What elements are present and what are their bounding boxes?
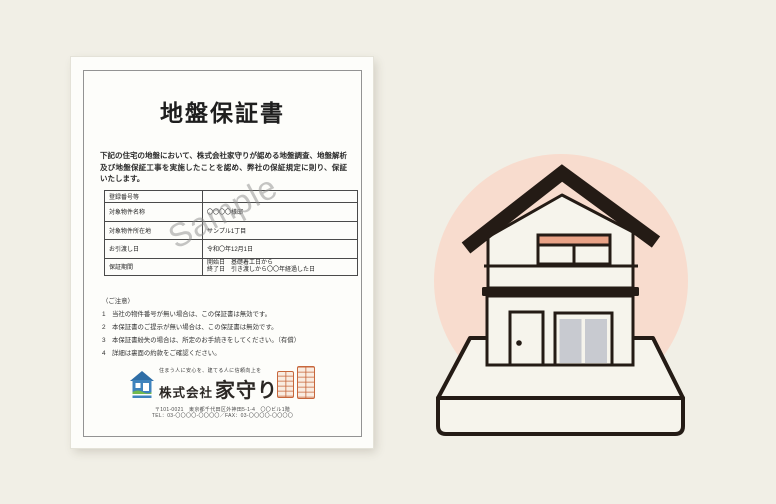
house-illustration xyxy=(420,118,756,454)
note-item: 2 本保証書のご提示が無い場合は、この保証書は無効です。 xyxy=(102,321,361,334)
company-name-block: 住まう人に安心を、建てる人に信頼向上を 株式会社 家守り xyxy=(159,367,278,403)
company-name: 家守り xyxy=(215,374,278,403)
certificate-intro-text: 下記の住宅の地盤において、株式会社家守りが認める地盤調査、地盤解析及び地盤保証工… xyxy=(100,150,347,185)
warranty-end-line: 終了日 引き渡しから〇〇年経過した日 xyxy=(207,267,353,274)
company-logo-house-icon xyxy=(130,370,154,400)
company-name-prefix: 株式会社 xyxy=(159,382,213,401)
company-name-row: 株式会社 家守り xyxy=(159,374,278,403)
phone-line: TEL：03-〇〇〇〇-〇〇〇〇／FAX：03-〇〇〇〇-〇〇〇〇 xyxy=(84,413,361,420)
table-row: 対象物件名称 〇〇〇〇様邸 xyxy=(105,202,358,221)
table-label: お引渡し日 xyxy=(105,239,203,258)
table-row: 登録番号等 xyxy=(105,190,358,202)
notes-section: （ご注意） 1 当社の物件番号が無い場合は、この保証書は無効です。 2 本保証書… xyxy=(102,295,361,360)
table-label: 対象物件名称 xyxy=(105,202,203,221)
table-value: サンプル1丁目 xyxy=(203,221,358,239)
company-address: 〒101-0021 東京都千代田区外神田5-1-4 〇〇ビル1階 TEL：03-… xyxy=(84,407,361,421)
screenshot-root: 地盤保証書 下記の住宅の地盤において、株式会社家守りが認める地盤調査、地盤解析及… xyxy=(0,0,776,504)
ground-slab-front xyxy=(438,398,683,434)
company-seal-icon xyxy=(277,371,294,398)
logo-window xyxy=(135,383,140,388)
note-item: 4 詳細は裏面の約款をご確認ください。 xyxy=(102,347,361,360)
logo-roof xyxy=(130,371,154,381)
logo-door xyxy=(143,383,149,391)
company-tagline: 住まう人に安心を、建てる人に信頼向上を xyxy=(159,367,278,374)
notes-heading: （ご注意） xyxy=(102,295,361,308)
table-value: 開始日 基礎着工日から 終了日 引き渡しから〇〇年経過した日 xyxy=(203,258,358,275)
table-row: お引渡し日 令和〇年12月1日 xyxy=(105,239,358,258)
glass-pane-right xyxy=(585,319,607,363)
table-value: 〇〇〇〇様邸 xyxy=(203,202,358,221)
table-label: 対象物件所在地 xyxy=(105,221,203,239)
certificate-document: 地盤保証書 下記の住宅の地盤において、株式会社家守りが認める地盤調査、地盤解析及… xyxy=(71,57,373,448)
glass-pane-left xyxy=(560,319,582,363)
warranty-start-line: 開始日 基礎着工日から xyxy=(207,260,353,267)
logo-base-text-bar xyxy=(132,395,151,398)
table-label: 登録番号等 xyxy=(105,190,203,202)
table-label: 保証期間 xyxy=(105,258,203,275)
table-value xyxy=(203,190,358,202)
company-seal-icon xyxy=(297,366,315,399)
door-knob-icon xyxy=(516,340,522,346)
note-item: 3 本保証書紛失の場合は、所定のお手続きをしてください。（有償） xyxy=(102,334,361,347)
note-item: 1 当社の物件番号が無い場合は、この保証書は無効です。 xyxy=(102,308,361,321)
certificate-table: 登録番号等 対象物件名称 〇〇〇〇様邸 対象物件所在地 サンプル1丁目 お引渡し… xyxy=(104,190,358,276)
front-door xyxy=(510,312,543,365)
company-logo-block: 住まう人に安心を、建てる人に信頼向上を 株式会社 家守り xyxy=(84,367,361,403)
company-seals xyxy=(277,370,315,399)
table-row: 保証期間 開始日 基礎着工日から 終了日 引き渡しから〇〇年経過した日 xyxy=(105,258,358,275)
table-row: 対象物件所在地 サンプル1丁目 xyxy=(105,221,358,239)
address-line: 〒101-0021 東京都千代田区外神田5-1-4 〇〇ビル1階 xyxy=(84,407,361,414)
table-value: 令和〇年12月1日 xyxy=(203,239,358,258)
certificate-title: 地盤保証書 xyxy=(84,71,361,126)
certificate-border-frame: 地盤保証書 下記の住宅の地盤において、株式会社家守りが認める地盤調査、地盤解析及… xyxy=(83,70,362,437)
